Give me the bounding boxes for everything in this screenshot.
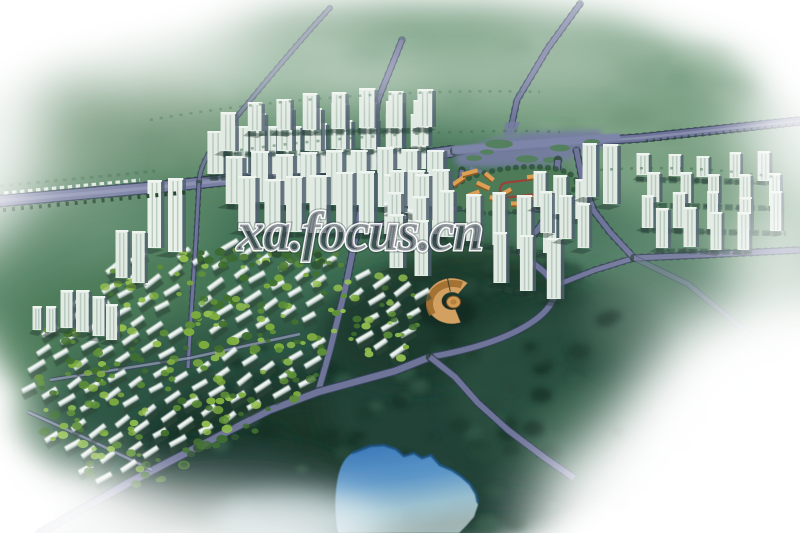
svg-text:xa.focus.cn: xa.focus.cn [236,201,482,262]
